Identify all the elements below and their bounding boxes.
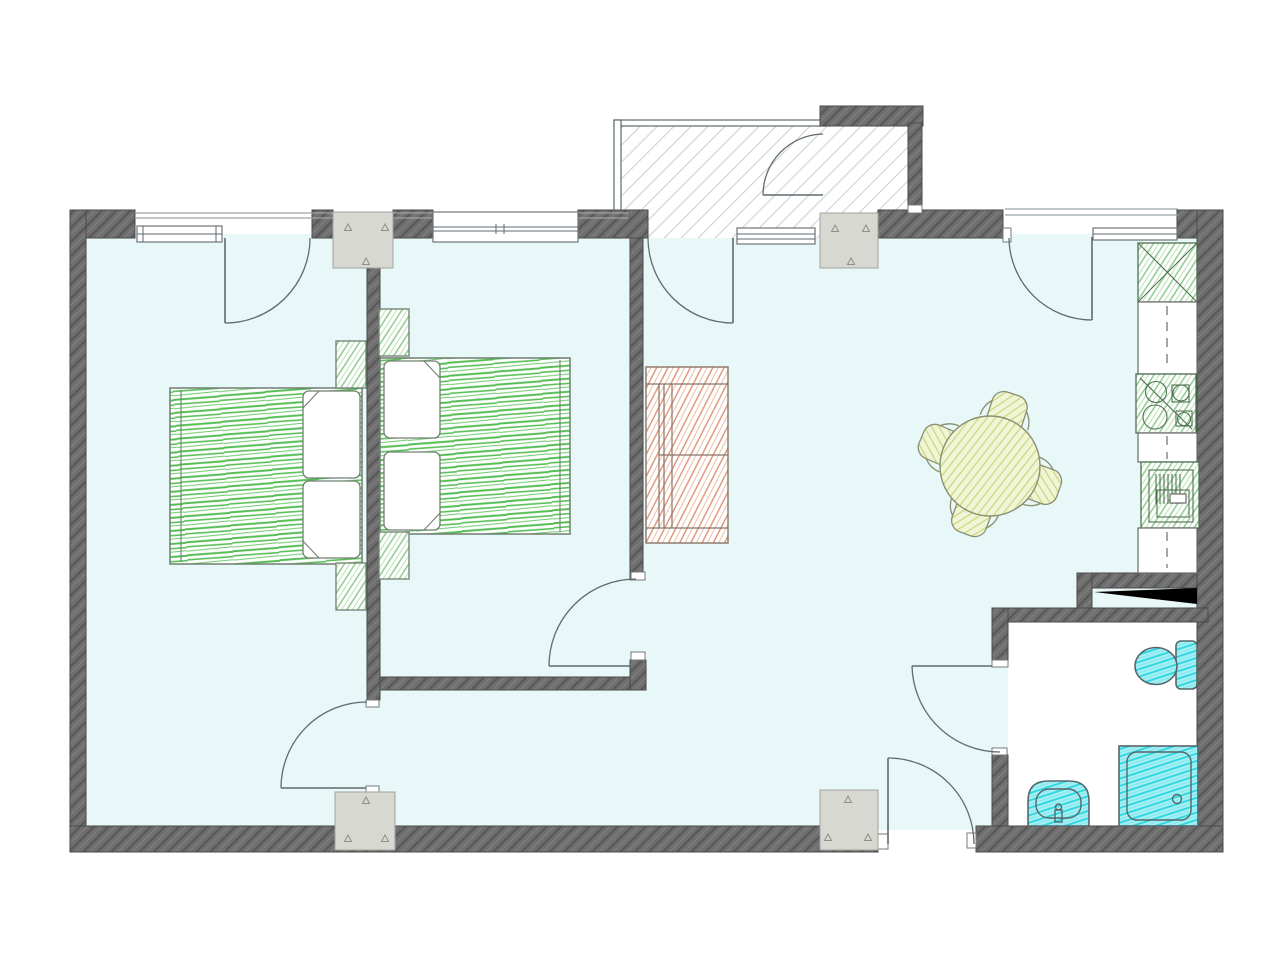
right-wall [1197, 210, 1223, 852]
window-bedroom-left [137, 226, 222, 242]
washbasin [1028, 781, 1089, 826]
pillow [303, 481, 360, 558]
bathroom-left-wall-lower [992, 755, 1008, 826]
nightstand [336, 341, 366, 388]
cooktop [1136, 374, 1196, 433]
pillow [384, 361, 440, 438]
shaft-wall-top [1077, 573, 1197, 588]
bedrooms-divider-wall [367, 238, 380, 700]
window-bedroom-middle [433, 212, 578, 242]
nightstand [379, 309, 409, 356]
shaft-wall-connector [1077, 573, 1092, 608]
pillow [384, 452, 440, 530]
bathroom-top-wall [992, 608, 1208, 622]
top-wall-segment-5 [878, 210, 1003, 238]
window-kitchen [1093, 228, 1177, 240]
column-top-left [333, 212, 393, 268]
kitchen-units [1136, 243, 1199, 573]
oven-unit [1141, 462, 1199, 528]
round-table [940, 416, 1040, 516]
top-wall-segment-2 [312, 210, 333, 238]
column-bottom-middle [820, 790, 878, 850]
bottom-wall-right [976, 826, 1223, 852]
column-top-entrance [820, 213, 878, 268]
column-bottom-left [335, 792, 395, 850]
bedroom2-wall-corner [630, 660, 646, 690]
bathroom-left-wall-upper [992, 608, 1008, 660]
bottom-wall-left [70, 826, 878, 852]
porch-top-thin-wall [614, 120, 830, 126]
window-porch-hall [737, 228, 815, 244]
wardrobe [646, 367, 728, 543]
nightstand [379, 532, 409, 579]
middle-wall [630, 238, 643, 580]
porch-heavy-wall-right [908, 123, 922, 213]
top-wall-segment-3 [393, 210, 433, 238]
top-wall-segment-4 [578, 210, 648, 238]
bedroom2-bottom-wall [380, 677, 646, 690]
left-wall [70, 210, 86, 852]
floor-plan-svg [0, 0, 1280, 960]
pillow [303, 391, 360, 478]
floor-plan-canvas [0, 0, 1280, 960]
shower-tray [1119, 746, 1198, 826]
nightstand [336, 563, 366, 610]
